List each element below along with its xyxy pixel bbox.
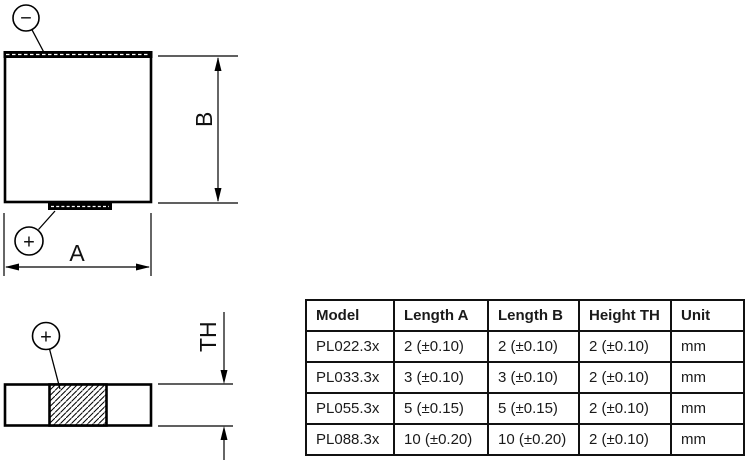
length-a-cell: 5 (±0.15): [394, 393, 488, 424]
dimensions-table: Model Length A Length B Height TH Unit P…: [305, 299, 745, 456]
side-positive-terminal-sign: +: [40, 327, 52, 349]
unit-cell: mm: [671, 393, 744, 424]
header-model: Model: [306, 300, 394, 331]
negative-terminal-sign: −: [20, 8, 32, 30]
length-a-cell: 2 (±0.10): [394, 331, 488, 362]
dim-a-arrow-right: [136, 264, 150, 271]
height-th-cell: 2 (±0.10): [579, 362, 671, 393]
header-length-b: Length B: [488, 300, 579, 331]
model-cell: PL055.3x: [306, 393, 394, 424]
dim-b-arrow-top: [215, 57, 222, 71]
unit-cell: mm: [671, 331, 744, 362]
datasheet-page: − + A B +: [0, 0, 750, 461]
height-th-cell: 2 (±0.10): [579, 393, 671, 424]
header-unit: Unit: [671, 300, 744, 331]
negative-terminal-leader: [32, 30, 44, 53]
dim-b-label: B: [191, 112, 217, 127]
height-th-cell: 2 (±0.10): [579, 424, 671, 455]
dim-th-arrow-down: [221, 370, 228, 384]
dim-a-arrow-left: [5, 264, 19, 271]
dim-a-label: A: [69, 240, 85, 266]
header-length-a: Length A: [394, 300, 488, 331]
table-header-row: Model Length A Length B Height TH Unit: [306, 300, 744, 331]
table-row: PL088.3x 10 (±0.20) 10 (±0.20) 2 (±0.10)…: [306, 424, 744, 455]
front-view-figure: − + A B: [4, 5, 239, 276]
side-view-figure: + TH: [5, 312, 233, 460]
positive-terminal-leader: [39, 211, 56, 230]
model-cell: PL088.3x: [306, 424, 394, 455]
length-a-cell: 3 (±0.10): [394, 362, 488, 393]
length-b-cell: 10 (±0.20): [488, 424, 579, 455]
length-b-cell: 5 (±0.15): [488, 393, 579, 424]
header-height-th: Height TH: [579, 300, 671, 331]
height-th-cell: 2 (±0.10): [579, 331, 671, 362]
length-b-cell: 3 (±0.10): [488, 362, 579, 393]
dim-b-arrow-bottom: [215, 188, 222, 202]
table-row: PL055.3x 5 (±0.15) 5 (±0.15) 2 (±0.10) m…: [306, 393, 744, 424]
table-row: PL033.3x 3 (±0.10) 3 (±0.10) 2 (±0.10) m…: [306, 362, 744, 393]
unit-cell: mm: [671, 362, 744, 393]
plate-body-front: [5, 54, 151, 202]
length-a-cell: 10 (±0.20): [394, 424, 488, 455]
dim-th-label: TH: [195, 321, 221, 352]
hatched-electrode-section: [50, 385, 107, 426]
unit-cell: mm: [671, 424, 744, 455]
positive-terminal-sign: +: [23, 232, 35, 254]
model-cell: PL022.3x: [306, 331, 394, 362]
side-positive-terminal-leader: [50, 349, 61, 389]
length-b-cell: 2 (±0.10): [488, 331, 579, 362]
dim-th-arrow-up: [221, 426, 228, 440]
model-cell: PL033.3x: [306, 362, 394, 393]
table-row: PL022.3x 2 (±0.10) 2 (±0.10) 2 (±0.10) m…: [306, 331, 744, 362]
